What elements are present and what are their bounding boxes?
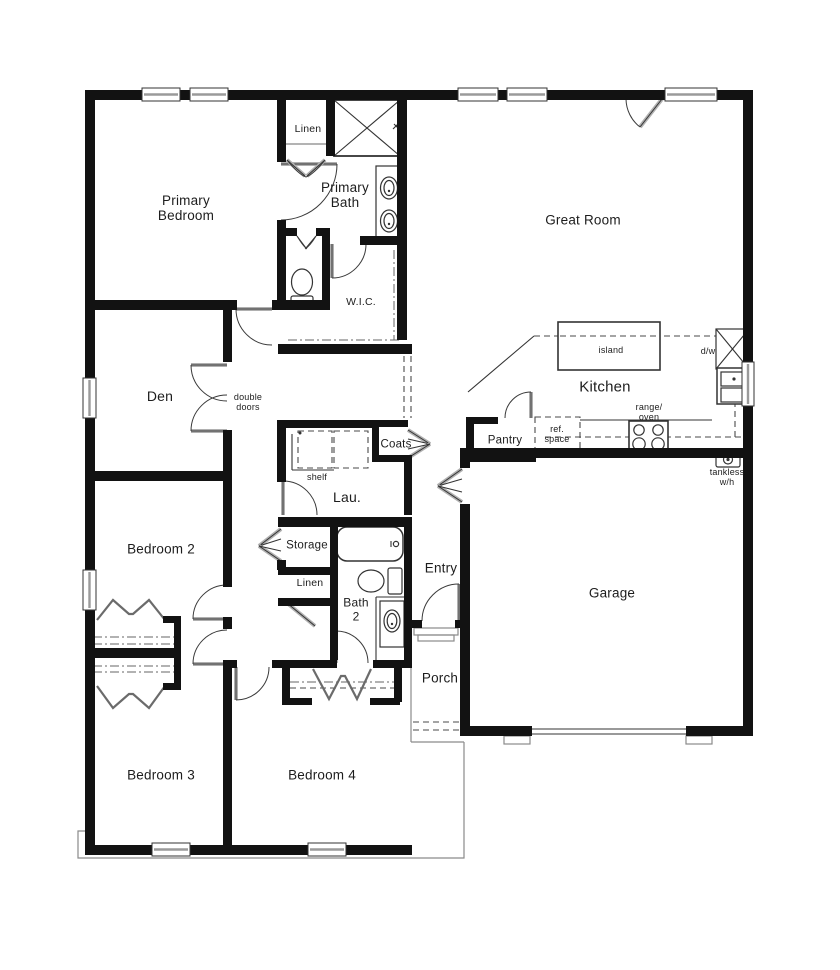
floorplan-page: Primary Bedroom Linen Primary Bath W.I.C… (0, 0, 840, 970)
bath2-tub-icon (337, 527, 403, 561)
room-label-laundry: Lau. (333, 490, 361, 506)
window (83, 570, 96, 610)
label-dishwasher: d/w (701, 346, 716, 356)
room-label-coats: Coats (380, 439, 411, 452)
window (665, 88, 717, 101)
room-label-bedroom3: Bedroom 3 (127, 767, 195, 782)
window (83, 378, 96, 418)
room-label-pantry: Pantry (488, 435, 522, 448)
room-label-garage: Garage (589, 585, 635, 600)
window (458, 88, 498, 101)
room-label-entry: Entry (425, 560, 458, 575)
label-tankless-wh: tankless w/h (710, 467, 745, 487)
room-label-porch: Porch (422, 670, 458, 685)
room-label-bedroom2: Bedroom 2 (127, 541, 195, 556)
room-label-linen-top: Linen (295, 124, 322, 136)
window (152, 843, 190, 856)
label-island: island (599, 345, 624, 355)
room-label-den: Den (147, 389, 173, 405)
room-label-wic: W.I.C. (346, 297, 376, 309)
label-range-oven: range/ oven (636, 402, 663, 422)
room-label-kitchen: Kitchen (579, 380, 630, 397)
washer-dryer-icon (292, 431, 368, 470)
window (190, 88, 228, 101)
room-label-linen-hall: Linen (297, 578, 324, 590)
room-label-bedroom4: Bedroom 4 (288, 767, 356, 782)
window (308, 843, 346, 856)
window (142, 88, 180, 101)
room-label-storage: Storage (286, 540, 328, 553)
window (507, 88, 547, 101)
archway-dashes (404, 356, 411, 418)
bath2-toilet-icon (358, 568, 402, 594)
room-label-primary-bedroom: Primary Bedroom (158, 193, 214, 224)
label-shelf: shelf (307, 472, 327, 482)
room-label-great-room: Great Room (545, 212, 621, 227)
window (742, 362, 754, 406)
shower-icon (334, 100, 400, 156)
room-label-bath2: Bath 2 (343, 596, 369, 623)
label-ref-space: ref. space (544, 424, 569, 444)
label-double-doors: double doors (234, 392, 262, 412)
room-label-primary-bath: Primary Bath (321, 180, 369, 211)
